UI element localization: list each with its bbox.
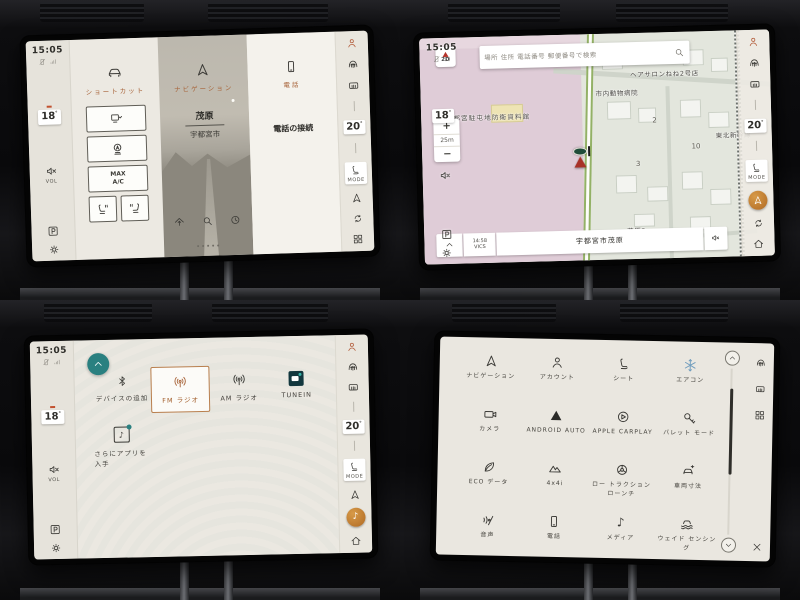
active-nav-app-button[interactable] bbox=[748, 190, 767, 209]
phone-icon bbox=[284, 59, 299, 74]
driver-temp-control[interactable]: 18° bbox=[41, 409, 64, 424]
map-search-bar[interactable]: 場所 住所 電話番号 郵便番号で検索 bbox=[479, 41, 690, 69]
temp-track bbox=[755, 141, 756, 151]
mountains-icon bbox=[548, 461, 563, 476]
driver-temp-control[interactable]: 18° bbox=[38, 110, 61, 125]
temp-track bbox=[353, 402, 354, 412]
dashboard-vent bbox=[452, 302, 556, 322]
seat-icon bbox=[350, 164, 362, 176]
nav-app-icon[interactable] bbox=[349, 488, 361, 500]
heated-seat-right-button[interactable] bbox=[121, 195, 150, 222]
heat-indicator bbox=[47, 106, 52, 108]
vehicle-arrow bbox=[574, 156, 586, 167]
get-more-apps[interactable]: ♪ さらにアプリを入手 bbox=[94, 426, 150, 468]
status-icons bbox=[38, 57, 57, 66]
home-icon[interactable] bbox=[350, 535, 362, 547]
source-tunein[interactable]: TUNEIN bbox=[267, 364, 325, 407]
touchscreen-media: 15:05 18° VOL bbox=[24, 328, 379, 565]
home-icon[interactable] bbox=[752, 238, 764, 250]
sidebar-right: 20° MODE ♪ bbox=[335, 334, 373, 553]
sidebar-left: 15:05 18° VOL bbox=[26, 40, 77, 261]
media-source-panel: デバイスの追加 FM ラジオ AM ラジオ TUNEIN bbox=[74, 335, 340, 558]
max-ac-button[interactable]: MAXA/C bbox=[88, 165, 149, 193]
map-block-number: 3 bbox=[636, 159, 641, 167]
app-valet-mode[interactable]: バレット モード bbox=[657, 410, 720, 455]
parking-aid-icon[interactable] bbox=[49, 523, 62, 536]
voice-waves-icon bbox=[480, 512, 495, 527]
map-label-hospital: 市内動物病院 bbox=[595, 87, 638, 98]
front-defrost-icon[interactable] bbox=[755, 357, 767, 369]
heat-indicator bbox=[50, 406, 55, 408]
app-navigation[interactable]: ナビゲーション bbox=[459, 353, 522, 398]
phone-disconnected-icon bbox=[42, 358, 50, 366]
photo-sun bbox=[231, 99, 234, 102]
app-phone[interactable]: 電話 bbox=[522, 513, 585, 558]
quadrant-media: 15:05 18° VOL bbox=[0, 300, 400, 600]
snowflake-icon bbox=[683, 358, 698, 373]
search-placeholder: 場所 住所 電話番号 郵便番号で検索 bbox=[484, 47, 673, 62]
auto-climate-button[interactable] bbox=[87, 135, 148, 163]
source-am-radio[interactable]: AM ラジオ bbox=[210, 365, 268, 410]
nav-arrow-icon bbox=[752, 194, 763, 205]
temp-track bbox=[354, 143, 355, 153]
volume-mute-icon[interactable] bbox=[45, 164, 58, 177]
app-voice[interactable]: 音声 bbox=[456, 512, 519, 557]
speaker-mute-icon bbox=[710, 233, 720, 243]
display-check-icon bbox=[109, 111, 123, 125]
source-tiles: デバイスの追加 FM ラジオ AM ラジオ TUNEIN bbox=[93, 364, 326, 415]
map-canvas[interactable]: 宇都宮駐屯地防衛資料館 ヘアサロンねね2号店 市内動物病院 東北新幹線 茂原2 … bbox=[419, 29, 775, 264]
map-block-number: 2 bbox=[652, 116, 657, 124]
nav-app-icon[interactable] bbox=[351, 192, 363, 204]
phone-connect-text[interactable]: 電話の接続 bbox=[273, 122, 313, 134]
signal-icon bbox=[49, 57, 57, 65]
sync-icon[interactable] bbox=[352, 213, 363, 224]
touchscreen-apps: ナビゲーション アカウント シート エアコン bbox=[430, 330, 781, 567]
volume-label: VOL bbox=[46, 178, 58, 184]
scroll-down-button[interactable] bbox=[720, 537, 735, 552]
scroll-up-button[interactable] bbox=[724, 350, 739, 365]
dashboard-trim bbox=[420, 588, 780, 600]
auto-ac-icon bbox=[109, 141, 124, 156]
app-drawer: ナビゲーション アカウント シート エアコン bbox=[436, 337, 748, 561]
dashboard-vent bbox=[448, 2, 560, 22]
rear-defrost-icon[interactable] bbox=[748, 78, 761, 91]
seat-mode-button[interactable]: MODE bbox=[746, 160, 768, 183]
search-icon[interactable] bbox=[202, 215, 214, 227]
recent-destinations-icon[interactable] bbox=[230, 214, 242, 226]
temp-track bbox=[353, 441, 354, 451]
clock: 15:05 bbox=[36, 346, 67, 357]
app-camera[interactable]: カメラ bbox=[458, 406, 521, 451]
volume-label: VOL bbox=[48, 477, 60, 483]
seat-mode-button[interactable]: MODE bbox=[345, 162, 367, 185]
rear-defrost-icon[interactable] bbox=[346, 381, 359, 394]
vehicle-position-marker bbox=[573, 147, 588, 167]
app-low-traction-launch[interactable]: ロー トラクション ローンチ bbox=[590, 462, 653, 507]
app-account[interactable]: アカウント bbox=[526, 354, 589, 399]
signal-icon bbox=[443, 55, 451, 63]
dashboard-vent bbox=[208, 2, 328, 22]
app-wade-sensing[interactable]: ウェイド センシング bbox=[655, 516, 718, 561]
panel-navigation[interactable]: ナビゲーション 茂原 宇都宮市 bbox=[158, 34, 253, 257]
front-defrost-icon[interactable] bbox=[346, 360, 359, 373]
phone-title: 電話 bbox=[283, 79, 300, 90]
dashboard-vent bbox=[620, 302, 728, 322]
quadrant-nav-map: 宇都宮駐屯地防衛資料館 ヘアサロンねね2号店 市内動物病院 東北新幹線 茂原2 … bbox=[400, 0, 800, 300]
dashboard-vent bbox=[212, 302, 328, 322]
source-fm-radio-selected[interactable]: FM ラジオ bbox=[150, 366, 211, 413]
steering-wheel-icon bbox=[614, 462, 629, 477]
map-block-number: 10 bbox=[691, 142, 700, 150]
go-home-icon[interactable] bbox=[174, 216, 186, 228]
occupant-icon[interactable] bbox=[346, 37, 358, 49]
tunein-icon bbox=[289, 371, 304, 386]
quadrant-app-drawer: ナビゲーション アカウント シート エアコン bbox=[400, 300, 800, 600]
android-auto-icon bbox=[549, 408, 564, 423]
front-defrost-icon[interactable] bbox=[747, 56, 760, 69]
heated-seat-icon bbox=[96, 202, 110, 216]
phone-icon bbox=[547, 514, 562, 529]
dashboard-vent bbox=[616, 2, 728, 22]
app-eco-data[interactable]: ECO データ bbox=[457, 459, 520, 504]
chevron-up-icon bbox=[727, 354, 736, 363]
dashboard-vent bbox=[40, 2, 144, 22]
heated-seat-left-button[interactable] bbox=[89, 196, 118, 223]
driver-temp-control[interactable]: 18° bbox=[432, 109, 455, 124]
app-4x4i[interactable]: 4x4i bbox=[523, 460, 586, 505]
display-off-button[interactable] bbox=[86, 105, 147, 133]
panel-phone[interactable]: 電話 電話の接続 bbox=[246, 32, 341, 255]
app-store-icon: ♪ bbox=[113, 427, 129, 443]
sidebar-left: 15:05 18° bbox=[419, 37, 469, 264]
volume-mute-icon[interactable] bbox=[47, 463, 60, 476]
sidebar-left: 15:05 18° VOL bbox=[30, 341, 79, 560]
nav-destination: 茂原 宇都宮市 bbox=[185, 108, 224, 140]
scrollbar[interactable] bbox=[720, 350, 740, 552]
guidance-mute-button[interactable] bbox=[704, 226, 728, 250]
dashboard-trim bbox=[420, 288, 780, 300]
car-dimensions-icon bbox=[681, 464, 696, 479]
scroll-track[interactable] bbox=[727, 369, 732, 535]
nav-dest-city: 宇都宮市 bbox=[186, 128, 224, 140]
valet-key-icon bbox=[682, 411, 697, 426]
rear-defrost-icon[interactable] bbox=[346, 79, 359, 92]
source-bluetooth[interactable]: デバイスの追加 bbox=[93, 367, 151, 410]
touchscreen-map: 宇都宮駐屯地防衛資料館 ヘアサロンねね2号店 市内動物病院 東北新幹線 茂原2 … bbox=[413, 23, 781, 270]
seat-icon bbox=[616, 356, 631, 371]
carplay-icon bbox=[615, 409, 630, 424]
music-note-icon: ♪ bbox=[617, 515, 625, 530]
settings-gear-icon[interactable] bbox=[47, 243, 59, 255]
seat-icon bbox=[750, 162, 762, 174]
photo-collage: 15:05 18° VOL bbox=[0, 0, 800, 600]
parking-aid-icon[interactable] bbox=[440, 228, 453, 241]
app-media[interactable]: ♪ メディア bbox=[589, 515, 652, 560]
active-media-app-button[interactable]: ♪ bbox=[346, 508, 365, 527]
app-seat[interactable]: シート bbox=[592, 356, 655, 401]
occupant-icon[interactable] bbox=[346, 341, 358, 353]
apps-grid-icon[interactable] bbox=[352, 233, 364, 245]
close-icon[interactable] bbox=[751, 541, 763, 553]
sidebar-right: 20° MODE bbox=[736, 29, 775, 256]
rear-defrost-icon[interactable] bbox=[754, 383, 766, 395]
settings-gear-icon[interactable] bbox=[49, 542, 61, 554]
signal-icon bbox=[53, 358, 61, 366]
volume-mute-icon[interactable] bbox=[438, 169, 451, 182]
quadrant-home: 15:05 18° VOL bbox=[0, 0, 400, 300]
app-grid: ナビゲーション アカウント シート エアコン bbox=[456, 353, 722, 561]
person-icon bbox=[550, 355, 565, 370]
home-panels: ショートカット MAXA/C bbox=[70, 32, 342, 260]
phone-disconnected-icon bbox=[38, 58, 46, 66]
search-icon[interactable] bbox=[673, 47, 684, 58]
sidebar-right bbox=[744, 343, 775, 561]
seat-icon bbox=[348, 461, 360, 473]
nav-title: ナビゲーション bbox=[174, 82, 234, 94]
radio-icon bbox=[231, 372, 246, 387]
nav-dest-name: 茂原 bbox=[185, 108, 224, 126]
scroll-thumb[interactable] bbox=[728, 389, 733, 475]
settings-gear-icon[interactable] bbox=[441, 247, 453, 259]
passenger-temp-control[interactable]: 20° bbox=[343, 120, 366, 135]
radio-icon bbox=[173, 375, 188, 390]
car-icon bbox=[107, 64, 123, 80]
temp-track bbox=[353, 101, 354, 111]
chevron-down-icon bbox=[723, 541, 732, 550]
app-climate[interactable]: エアコン bbox=[659, 357, 722, 402]
shortcut-buttons: MAXA/C bbox=[86, 105, 150, 223]
app-apple-carplay[interactable]: APPLE CARPLAY bbox=[591, 409, 654, 454]
parking-aid-icon[interactable] bbox=[46, 224, 59, 237]
leaf-icon bbox=[481, 459, 496, 474]
app-android-auto[interactable]: ANDROID AUTO bbox=[524, 407, 587, 452]
occupant-icon[interactable] bbox=[747, 36, 759, 48]
sidebar-right: 20° MODE bbox=[334, 31, 374, 252]
dashboard-trim bbox=[20, 588, 380, 600]
apps-grid-icon[interactable] bbox=[754, 409, 766, 421]
passenger-temp-control[interactable]: 20° bbox=[342, 419, 365, 434]
dashboard-trim bbox=[20, 288, 380, 300]
nav-arrow-icon bbox=[483, 353, 498, 368]
panel-shortcuts[interactable]: ショートカット MAXA/C bbox=[70, 37, 165, 260]
land-rover-badge bbox=[573, 147, 587, 155]
passenger-temp-control[interactable]: 20° bbox=[744, 118, 767, 133]
seat-mode-button[interactable]: MODE bbox=[344, 459, 366, 481]
map-label-salon: ヘアサロンねね2号店 bbox=[630, 67, 699, 79]
heated-seat-icon bbox=[128, 201, 142, 215]
sync-icon[interactable] bbox=[752, 218, 763, 229]
clock: 15:05 bbox=[426, 43, 457, 54]
front-defrost-icon[interactable] bbox=[346, 58, 359, 71]
phone-disconnected-icon bbox=[432, 55, 440, 63]
touchscreen-home: 15:05 18° VOL bbox=[19, 24, 380, 267]
bluetooth-icon bbox=[115, 375, 128, 388]
temp-track bbox=[754, 100, 755, 110]
app-vehicle-dimensions[interactable]: 車両寸法 bbox=[656, 463, 719, 508]
camera-icon bbox=[482, 406, 497, 421]
dashboard-vent bbox=[44, 302, 152, 322]
clock: 15:05 bbox=[32, 45, 63, 56]
wade-sensing-icon bbox=[680, 517, 695, 532]
shortcuts-title: ショートカット bbox=[85, 85, 145, 97]
nav-arrow-icon bbox=[195, 62, 211, 78]
